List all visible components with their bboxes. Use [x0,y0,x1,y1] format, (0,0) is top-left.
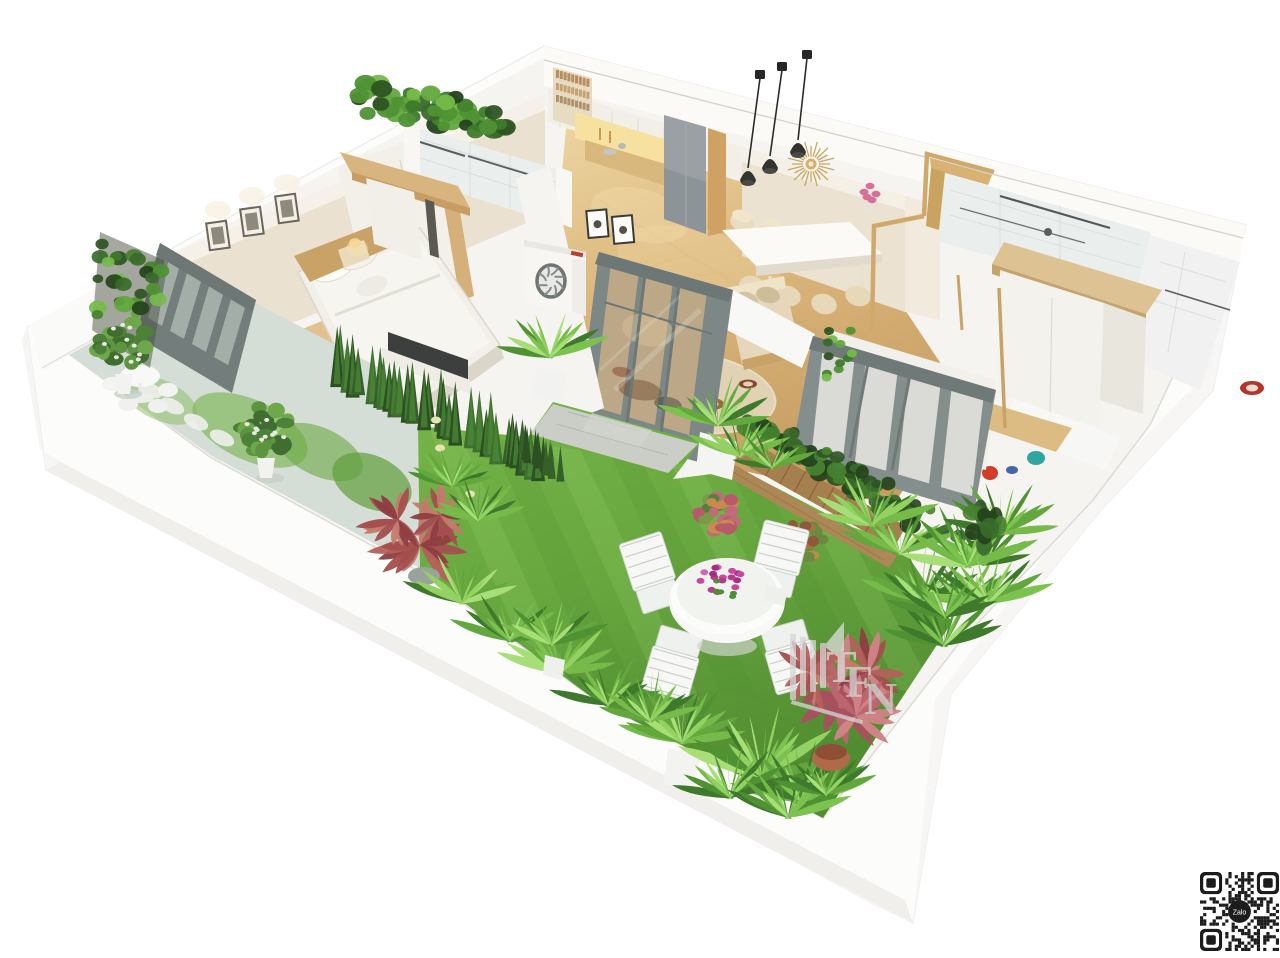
svg-text:Zalo: Zalo [1233,910,1247,917]
svg-text:N: N [864,673,897,724]
